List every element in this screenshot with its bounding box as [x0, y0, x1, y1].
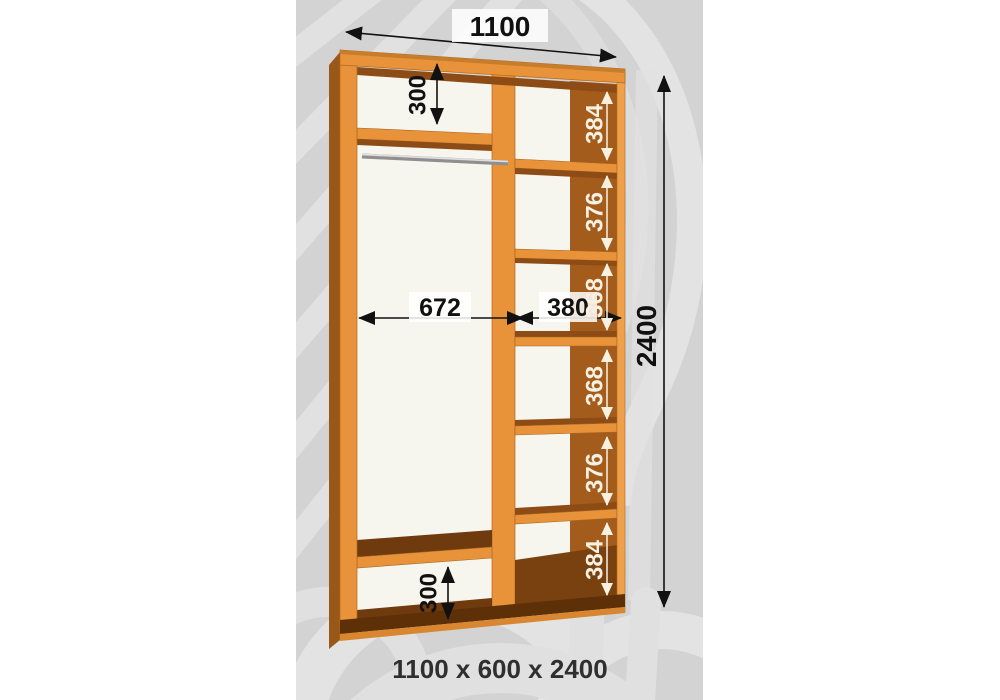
- dim-right-cell-4-label: 368: [581, 366, 608, 406]
- dim-right-cell-3-label: 368: [581, 278, 608, 318]
- right-shelf-3-surface: [515, 331, 617, 337]
- dim-top-section-label: 300: [404, 75, 431, 115]
- right-shelf-3: [515, 337, 617, 346]
- left-panel-side-face: [329, 52, 340, 649]
- dim-right-cell-6-label: 384: [581, 539, 608, 580]
- wardrobe-diagram: 1100 300 672 380 2400 300: [0, 0, 1000, 700]
- dim-right-cell-1-label: 384: [581, 103, 608, 144]
- dim-bottom-section-label: 300: [415, 573, 442, 613]
- size-caption: 1100 x 600 x 2400: [392, 654, 607, 684]
- dim-overall-height-label: 2400: [631, 305, 662, 367]
- dim-overall-width-label: 1100: [470, 11, 531, 42]
- right-panel-front-edge: [617, 69, 625, 612]
- dim-left-inner-width-label: 672: [419, 294, 461, 322]
- dim-right-cell-2-label: 376: [581, 192, 608, 232]
- dim-right-cell-5-label: 376: [581, 453, 608, 493]
- screenshot-stage: 1100 300 672 380 2400 300: [0, 0, 1000, 700]
- divider-panel: [492, 74, 515, 613]
- left-panel-front-edge: [340, 52, 357, 640]
